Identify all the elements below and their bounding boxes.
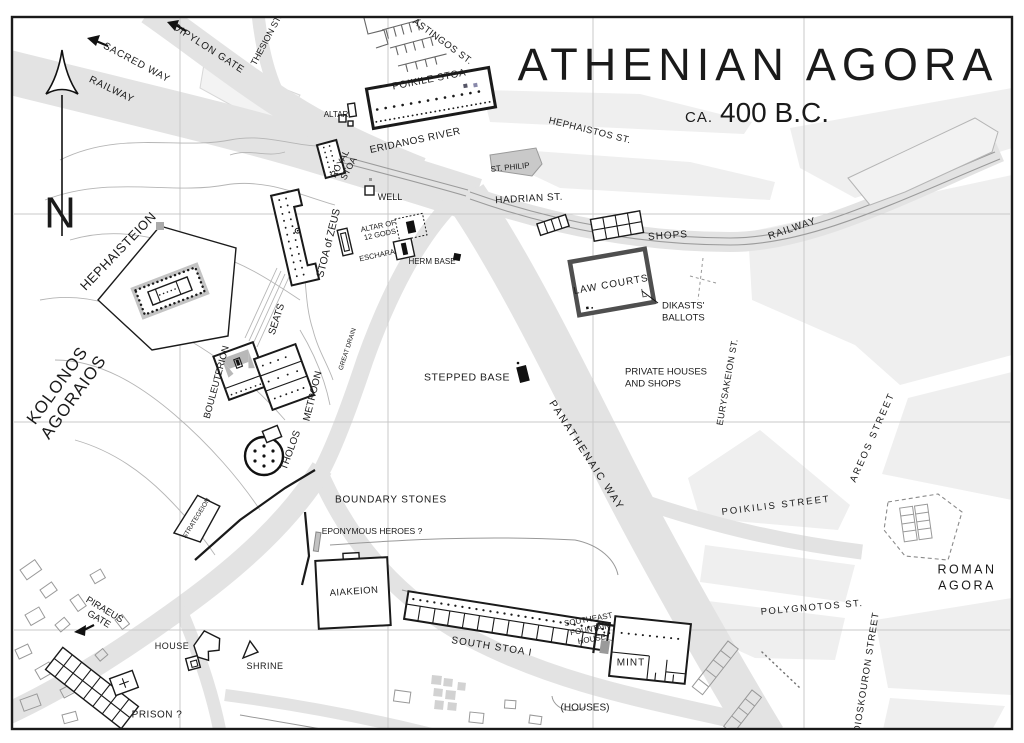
agora-map: SACRED WAYRAILWAYDIPYLON GATETHESION ST.… bbox=[0, 0, 1024, 743]
mint-label: MINT bbox=[617, 658, 645, 669]
map-page: SACRED WAYRAILWAYDIPYLON GATETHESION ST.… bbox=[0, 0, 1024, 743]
well-label: WELL bbox=[378, 192, 403, 202]
herm-base-label: HERM BASE bbox=[408, 257, 455, 266]
mint-building bbox=[609, 616, 691, 684]
shrine-label: SHRINE bbox=[246, 661, 283, 671]
stepped-base-label: STEPPED BASE bbox=[424, 372, 510, 384]
map-subtitle-date: 400 B.C. bbox=[720, 97, 829, 128]
boundary-stones-label: BOUNDARY STONES bbox=[335, 495, 447, 506]
house-label: HOUSE bbox=[155, 641, 190, 651]
altar-annex2-icon bbox=[348, 121, 353, 126]
north-indicator-label: N bbox=[44, 188, 76, 237]
map-title: ATHENIAN AGORA bbox=[518, 39, 999, 90]
altar-north-label: ALTAR bbox=[324, 110, 349, 119]
houses-label: (HOUSES) bbox=[561, 703, 610, 714]
altar-icon bbox=[348, 103, 357, 117]
eponymous-heroes-label: EPONYMOUS HEROES ? bbox=[322, 526, 423, 536]
map-subtitle-prefix: CA. bbox=[685, 109, 713, 126]
prison-label: PRISON ? bbox=[132, 710, 183, 721]
dikasts-ballots-label: DIKASTS'BALLOTS bbox=[662, 300, 705, 323]
